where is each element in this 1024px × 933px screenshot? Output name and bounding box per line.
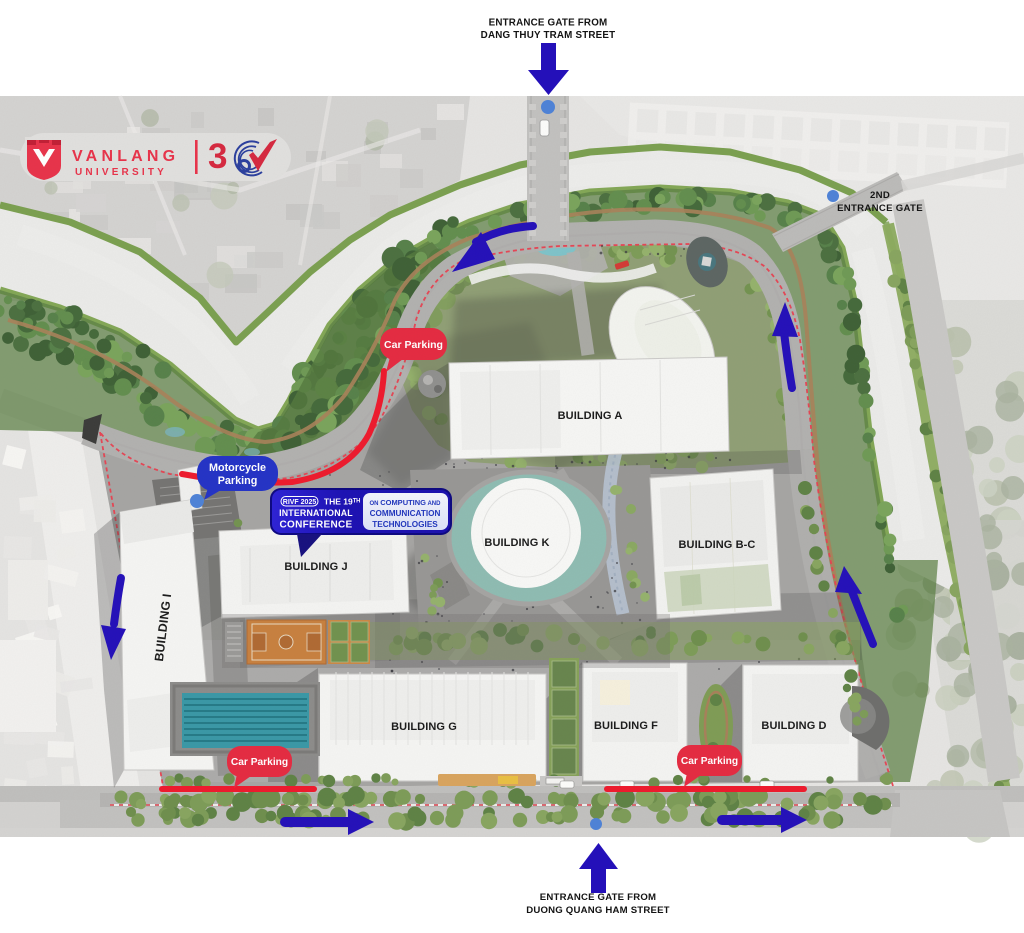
svg-text:DANG THUY TRAM STREET: DANG THUY TRAM STREET (481, 30, 616, 41)
svg-text:DUONG QUANG HAM STREET: DUONG QUANG HAM STREET (526, 905, 670, 916)
svg-text:ENTRANCE GATE FROM: ENTRANCE GATE FROM (489, 18, 608, 29)
svg-text:ENTRANCE GATE FROM: ENTRANCE GATE FROM (540, 892, 656, 903)
